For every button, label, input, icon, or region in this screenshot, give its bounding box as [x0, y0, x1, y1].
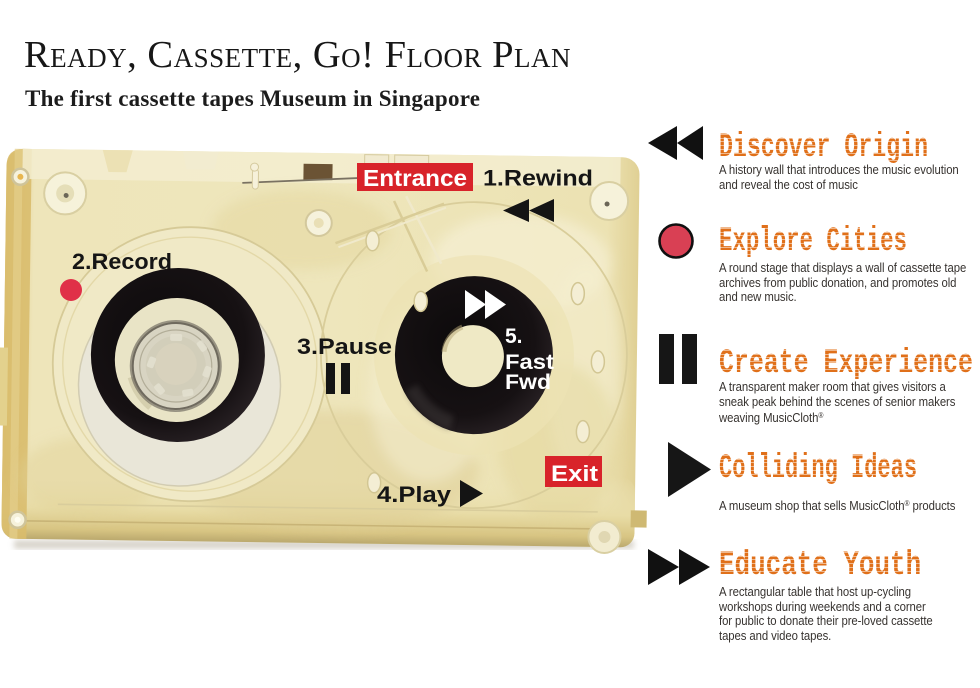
svg-text:3.Pause: 3.Pause: [297, 334, 392, 359]
svg-text:Exit: Exit: [551, 461, 599, 486]
svg-text:2.Record: 2.Record: [72, 249, 172, 274]
svg-text:5.: 5.: [505, 325, 523, 348]
svg-text:4.Play: 4.Play: [377, 482, 452, 507]
svg-text:Fwd: Fwd: [505, 371, 551, 394]
svg-text:Entrance: Entrance: [363, 165, 467, 191]
svg-text:1.Rewind: 1.Rewind: [483, 166, 593, 191]
